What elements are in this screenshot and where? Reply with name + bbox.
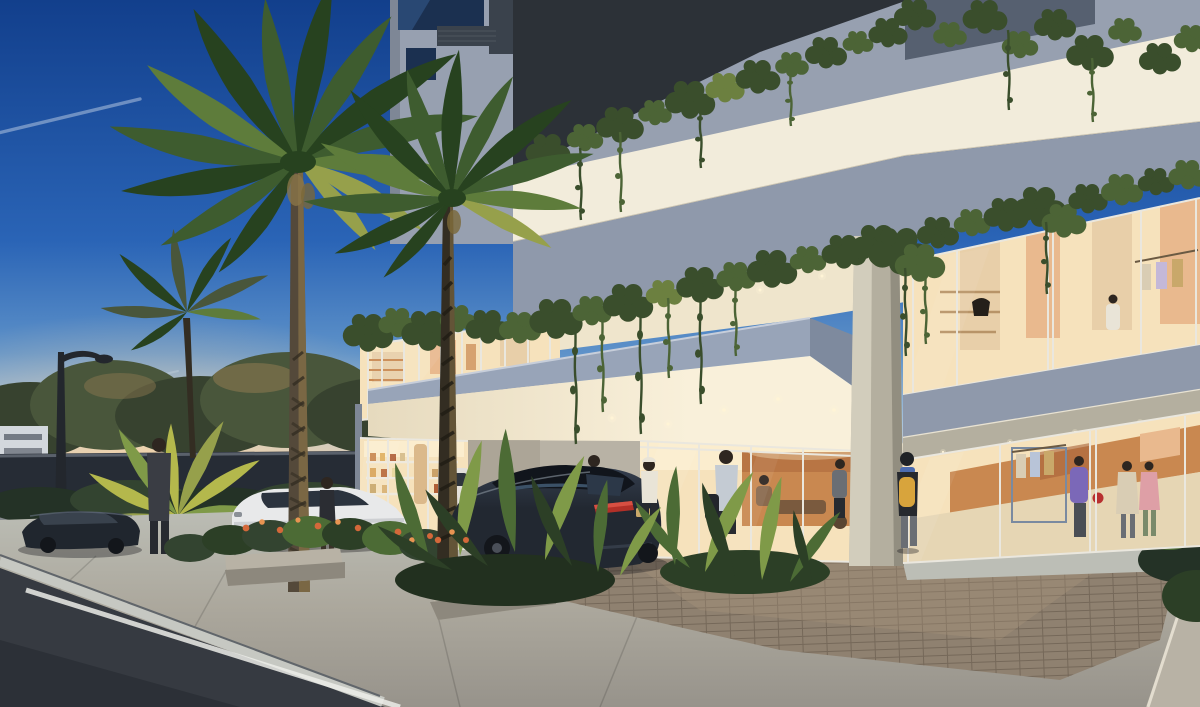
louver-panel: [489, 0, 513, 54]
rendering-canvas: [0, 0, 1200, 707]
showroom-chair: [972, 298, 990, 316]
dusk-entrance-rendering: [0, 0, 1200, 707]
boutique-red-bag: [1093, 493, 1104, 504]
corner-pillar: [849, 236, 904, 566]
parked-coupe: [22, 511, 140, 554]
yellow-backpack: [899, 477, 915, 507]
cafe-tall-display: [414, 444, 427, 504]
